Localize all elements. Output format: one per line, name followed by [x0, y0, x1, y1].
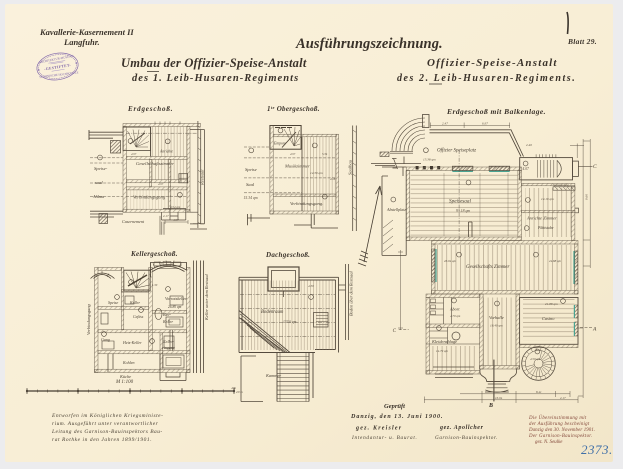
svg-text:1.30: 1.30 — [152, 283, 158, 287]
svg-text:Altbau: Altbau — [92, 194, 104, 199]
svg-text:4.18: 4.18 — [330, 177, 336, 181]
svg-text:saal: saal — [95, 180, 103, 185]
svg-text:Blatt 29.: Blatt 29. — [567, 37, 597, 46]
svg-text:Bier-: Bier- — [163, 312, 172, 317]
svg-text:Offizier Speiseplatz: Offizier Speiseplatz — [437, 149, 476, 154]
svg-text:4.97: 4.97 — [173, 218, 179, 222]
svg-text:Kellergeschoß.: Kellergeschoß. — [130, 250, 178, 258]
svg-text:14.30 qm: 14.30 qm — [310, 171, 323, 175]
svg-text:B: B — [488, 403, 493, 409]
svg-text:8.41: 8.41 — [536, 390, 542, 394]
svg-text:Kleiderablage: Kleiderablage — [431, 339, 457, 344]
svg-text:Verbindungsgang: Verbindungsgang — [86, 303, 91, 335]
svg-text:2.47: 2.47 — [442, 122, 448, 126]
svg-text:2373.: 2373. — [581, 442, 613, 457]
svg-text:Restsaal: Restsaal — [199, 169, 204, 186]
svg-text:Verbindungsgang.: Verbindungsgang. — [290, 201, 323, 206]
svg-text:Erdgeschoß.: Erdgeschoß. — [127, 105, 173, 113]
svg-text:Keller-: Keller- — [162, 339, 175, 344]
svg-text:Kohlen: Kohlen — [122, 360, 135, 365]
svg-text:Gesellschaftszimmer: Gesellschaftszimmer — [136, 161, 174, 166]
svg-text:Umbau der Offizier-Speise-Anst: Umbau der Offizier-Speise-Anstalt — [121, 56, 307, 70]
svg-text:5.34: 5.34 — [322, 152, 328, 156]
svg-text:Bodenraum: Bodenraum — [261, 310, 284, 315]
svg-text:M 1:100: M 1:100 — [115, 380, 134, 385]
svg-text:26.04 qm: 26.04 qm — [444, 259, 457, 263]
svg-text:Speisesaal: Speisesaal — [449, 199, 471, 205]
svg-text:4.50 qm: 4.50 qm — [530, 357, 541, 361]
svg-text:2.50: 2.50 — [254, 330, 260, 334]
svg-text:Erdgeschoß mit Balkenlage.: Erdgeschoß mit Balkenlage. — [446, 107, 546, 116]
svg-text:Verbindungsgang: Verbindungsgang — [133, 195, 166, 200]
svg-text:Speise: Speise — [245, 167, 257, 172]
svg-text:2.40: 2.40 — [526, 143, 532, 147]
svg-text:Speise: Speise — [108, 300, 118, 305]
svg-text:Plättstube: Plättstube — [537, 226, 554, 230]
svg-text:24.88 qm: 24.88 qm — [549, 259, 562, 263]
svg-text:A: A — [592, 327, 597, 333]
svg-text:Leitung des Garnison-Bauinspek: Leitung des Garnison-Bauinspektors Bau- — [51, 429, 163, 435]
svg-text:des 1. Leib-Husaren-Regiments: des 1. Leib-Husaren-Regiments — [132, 73, 299, 84]
svg-text:8.60: 8.60 — [585, 194, 589, 200]
svg-text:8.54 qm: 8.54 qm — [170, 205, 181, 209]
svg-text:Keller: Keller — [129, 300, 140, 305]
svg-text:Saalbau: Saalbau — [348, 159, 353, 175]
svg-text:Kammer: Kammer — [265, 373, 281, 378]
svg-text:Keller: Keller — [162, 319, 173, 324]
svg-text:Gesellschafts Zimmer: Gesellschafts Zimmer — [466, 265, 510, 270]
svg-text:14.79 qm: 14.79 qm — [436, 349, 449, 353]
svg-text:Entworfen im Königlichen Krieg: Entworfen im Königlichen Kriegsministe- — [51, 412, 163, 419]
svg-text:Casino: Casino — [542, 316, 555, 321]
svg-text:Die Übereinstimmung mit: Die Übereinstimmung mit — [528, 415, 587, 421]
svg-text:Heiz-Keller: Heiz-Keller — [122, 340, 142, 345]
svg-text:4.97: 4.97 — [290, 152, 296, 156]
svg-text:133.6 qm: 133.6 qm — [283, 320, 297, 324]
svg-text:Vorratskeller: Vorratskeller — [165, 296, 187, 301]
svg-text:Abstellplatz: Abstellplatz — [386, 207, 406, 212]
svg-text:gez. Kreisler: gez. Kreisler — [355, 426, 402, 432]
svg-text:Casernement: Casernement — [122, 219, 145, 224]
svg-text:Geprüft: Geprüft — [384, 403, 405, 410]
svg-text:Vorhalle: Vorhalle — [489, 315, 504, 320]
svg-text:26.80 qm: 26.80 qm — [168, 305, 182, 309]
svg-text:Keller unter dem Restsaal: Keller unter dem Restsaal — [204, 273, 209, 321]
svg-text:Kavallerie-Kasernement II: Kavallerie-Kasernement II — [39, 27, 134, 37]
svg-text:Saal: Saal — [246, 182, 255, 187]
svg-text:Anrichte Zimmer: Anrichte Zimmer — [526, 216, 557, 221]
svg-text:Empore: Empore — [273, 142, 286, 146]
svg-text:18.40 qm: 18.40 qm — [490, 324, 503, 328]
svg-text:Anrichte: Anrichte — [159, 150, 173, 154]
svg-text:40p: 40p — [231, 386, 236, 390]
svg-text:Abort: Abort — [449, 307, 460, 312]
svg-text:6.97: 6.97 — [482, 122, 488, 126]
svg-text:1ᵗᵉ Obergeschoß.: 1ᵗᵉ Obergeschoß. — [267, 105, 320, 113]
svg-text:21.88 qm: 21.88 qm — [545, 302, 558, 306]
svg-text:93.18 qm: 93.18 qm — [456, 209, 470, 213]
svg-text:4.07: 4.07 — [523, 167, 529, 171]
svg-text:des 2. Leib-Husaren-Regimen: des 2. Leib-Husaren-Regiments. — [397, 73, 576, 84]
svg-text:gez. Apollcher: gez. Apollcher — [439, 425, 484, 431]
svg-text:20 m: 20 m — [236, 390, 243, 394]
svg-text:Gang: Gang — [101, 337, 110, 342]
svg-text:Ausführungszeichnung.: Ausführungszeichnung. — [295, 36, 443, 52]
svg-text:4.30: 4.30 — [308, 284, 314, 288]
svg-text:14.10 qm: 14.10 qm — [541, 197, 554, 201]
svg-text:15.34 qm: 15.34 qm — [244, 196, 258, 200]
svg-text:Musikzimmer: Musikzimmer — [284, 164, 310, 169]
svg-text:der Ausführung bescheinigt: der Ausführung bescheinigt — [529, 422, 590, 427]
svg-text:Intendantur- u. Baurat.: Intendantur- u. Baurat. — [351, 435, 418, 441]
svg-text:4.70 qm: 4.70 qm — [450, 314, 461, 318]
svg-text:Langfuhr.: Langfuhr. — [63, 37, 100, 47]
svg-text:Danzig, den 13. Juni 1900.: Danzig, den 13. Juni 1900. — [350, 414, 444, 420]
svg-text:2.17: 2.17 — [163, 214, 169, 218]
svg-text:Dachgeschoß.: Dachgeschoß. — [265, 251, 310, 259]
svg-text:Speise-: Speise- — [94, 166, 108, 171]
svg-text:Küche: Küche — [119, 374, 131, 379]
svg-text:16.04: 16.04 — [495, 396, 503, 400]
svg-text:Boden über dem Restsaal: Boden über dem Restsaal — [349, 270, 354, 316]
svg-text:Der Garnison-Bauinspektor.: Der Garnison-Bauinspektor. — [528, 434, 593, 439]
svg-text:eingang: eingang — [162, 345, 175, 350]
svg-text:gez. N. Seulke: gez. N. Seulke — [535, 440, 563, 445]
svg-text:Gefäss: Gefäss — [133, 315, 144, 319]
svg-text:C: C — [593, 164, 597, 170]
svg-text:Garnison-Bauinspektor.: Garnison-Bauinspektor. — [435, 435, 498, 441]
svg-text:Offizier-Speise-Anstalt: Offizier-Speise-Anstalt — [427, 57, 558, 69]
svg-text:Danzig den 30. November 1901.: Danzig den 30. November 1901. — [528, 428, 595, 433]
svg-text:2.17: 2.17 — [560, 396, 566, 400]
svg-text:rat Rothke in den Jahren 1899/: rat Rothke in den Jahren 1899/1901. — [52, 437, 152, 443]
svg-text:Speisenaufzug: Speisenaufzug — [553, 184, 570, 187]
svg-text:15.38 qm: 15.38 qm — [423, 158, 436, 162]
svg-text:4.97: 4.97 — [131, 152, 137, 156]
svg-text:4.97: 4.97 — [158, 182, 164, 186]
svg-text:rium. Ausgeführt unter verant: rium. Ausgeführt unter verantwortlicher — [52, 420, 159, 427]
